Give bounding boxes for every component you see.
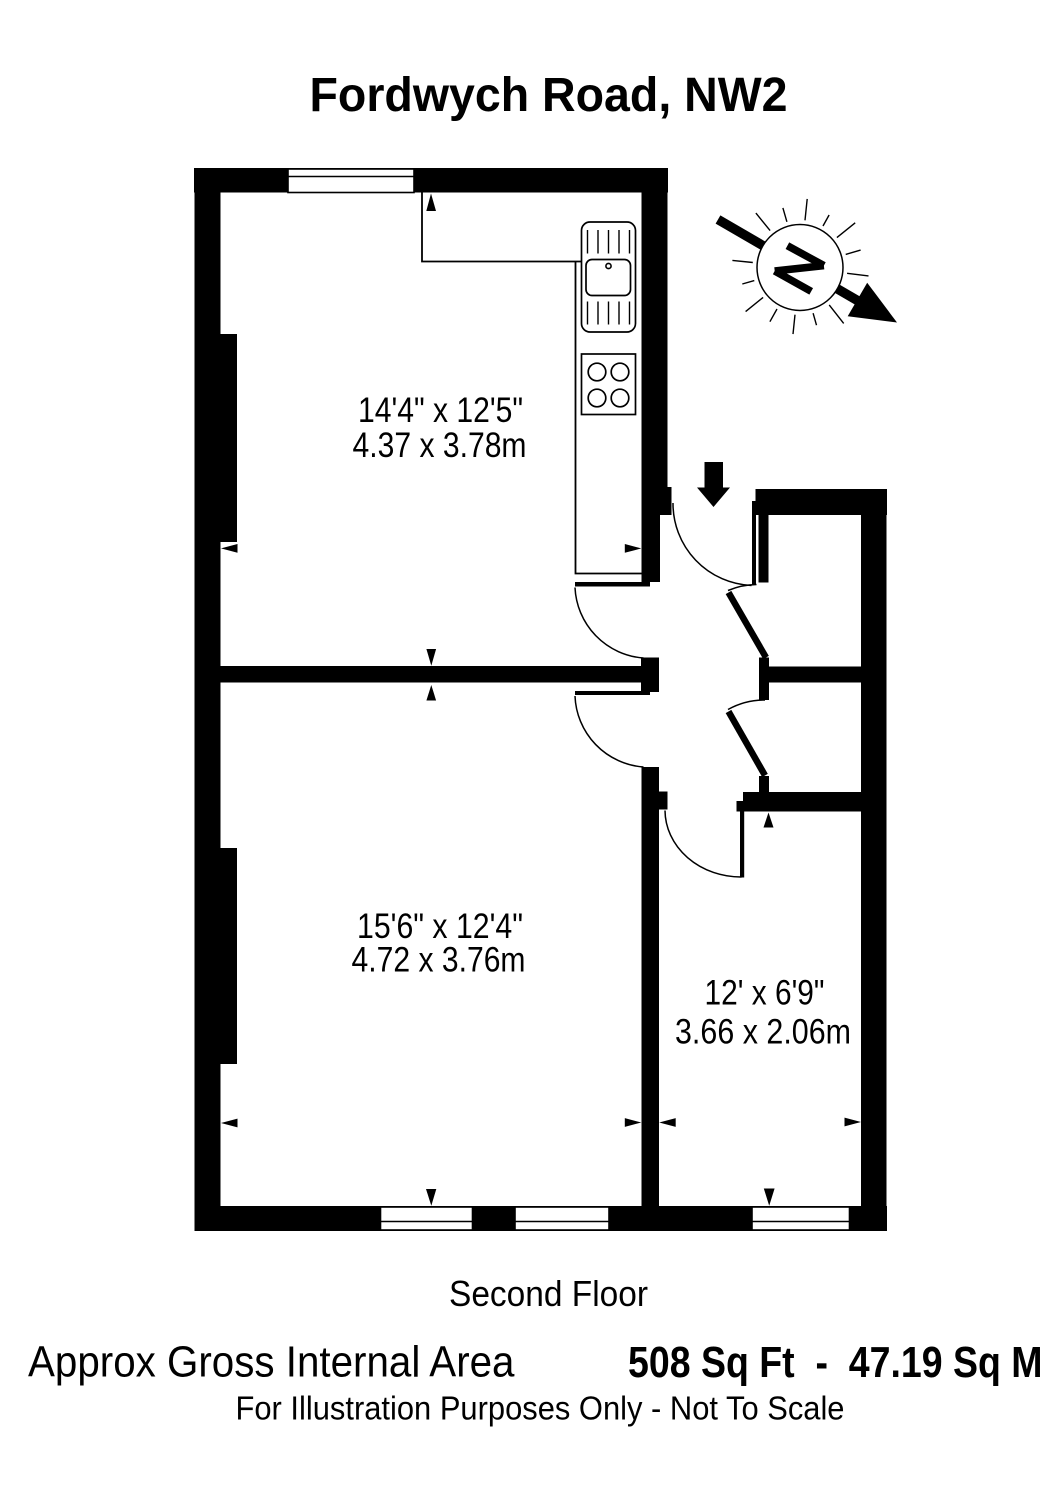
- svg-text:Second Floor: Second Floor: [449, 1273, 648, 1314]
- svg-text:4.37 x 3.78m: 4.37 x 3.78m: [353, 425, 527, 465]
- svg-text:Fordwych Road, NW2: Fordwych Road, NW2: [310, 68, 788, 122]
- svg-text:508 Sq Ft - 47.19 Sq M: 508 Sq Ft - 47.19 Sq M: [628, 1338, 1043, 1387]
- svg-text:4.72 x 3.76m: 4.72 x 3.76m: [352, 940, 526, 980]
- svg-text:3.66 x 2.06m: 3.66 x 2.06m: [675, 1012, 851, 1052]
- svg-text:For Illustration Purposes Only: For Illustration Purposes Only - Not To …: [236, 1390, 845, 1427]
- svg-text:14'4" x 12'5": 14'4" x 12'5": [358, 390, 523, 430]
- svg-text:12' x 6'9": 12' x 6'9": [705, 973, 825, 1013]
- svg-text:Approx Gross Internal Area: Approx Gross Internal Area: [28, 1338, 515, 1387]
